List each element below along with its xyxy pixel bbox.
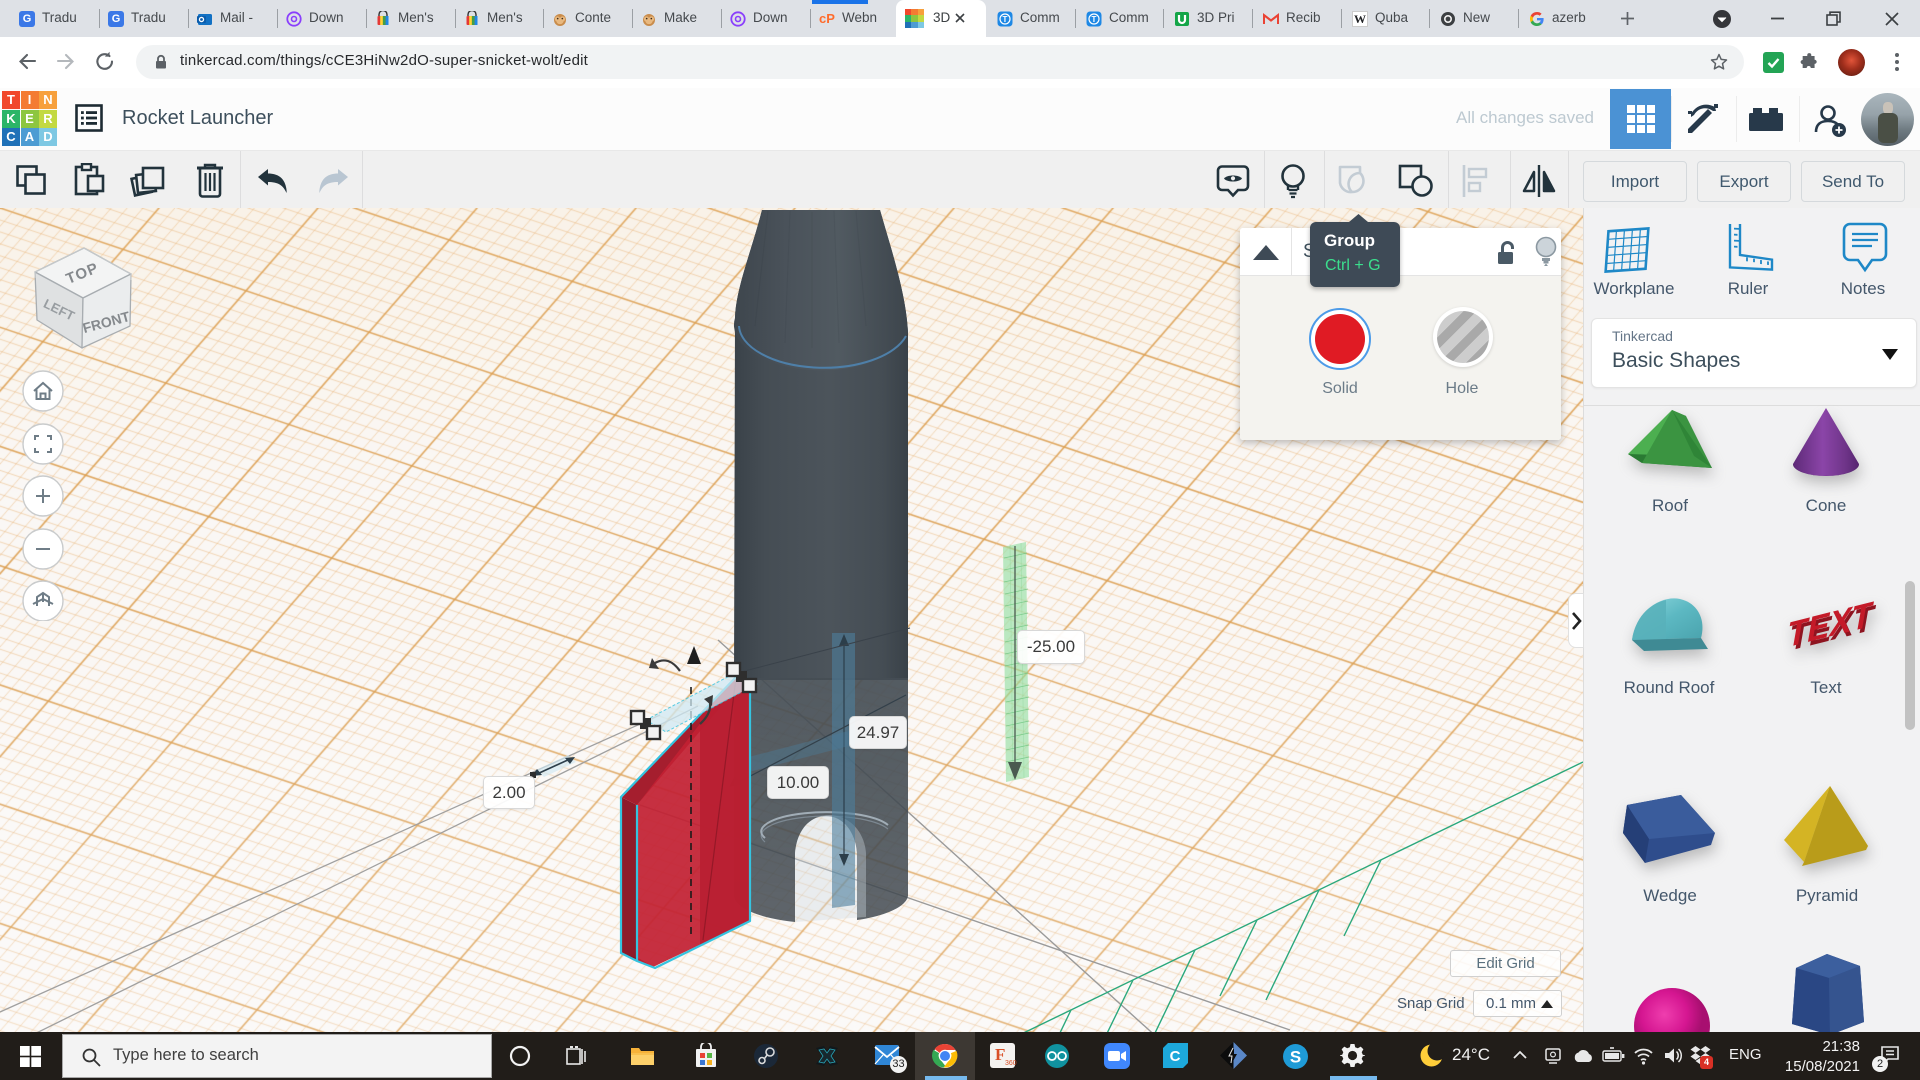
svg-text:S: S [1290,1048,1301,1067]
svg-text:C: C [1170,1048,1181,1065]
svg-text:T: T [1003,15,1008,24]
svg-text:T: T [1092,15,1097,24]
